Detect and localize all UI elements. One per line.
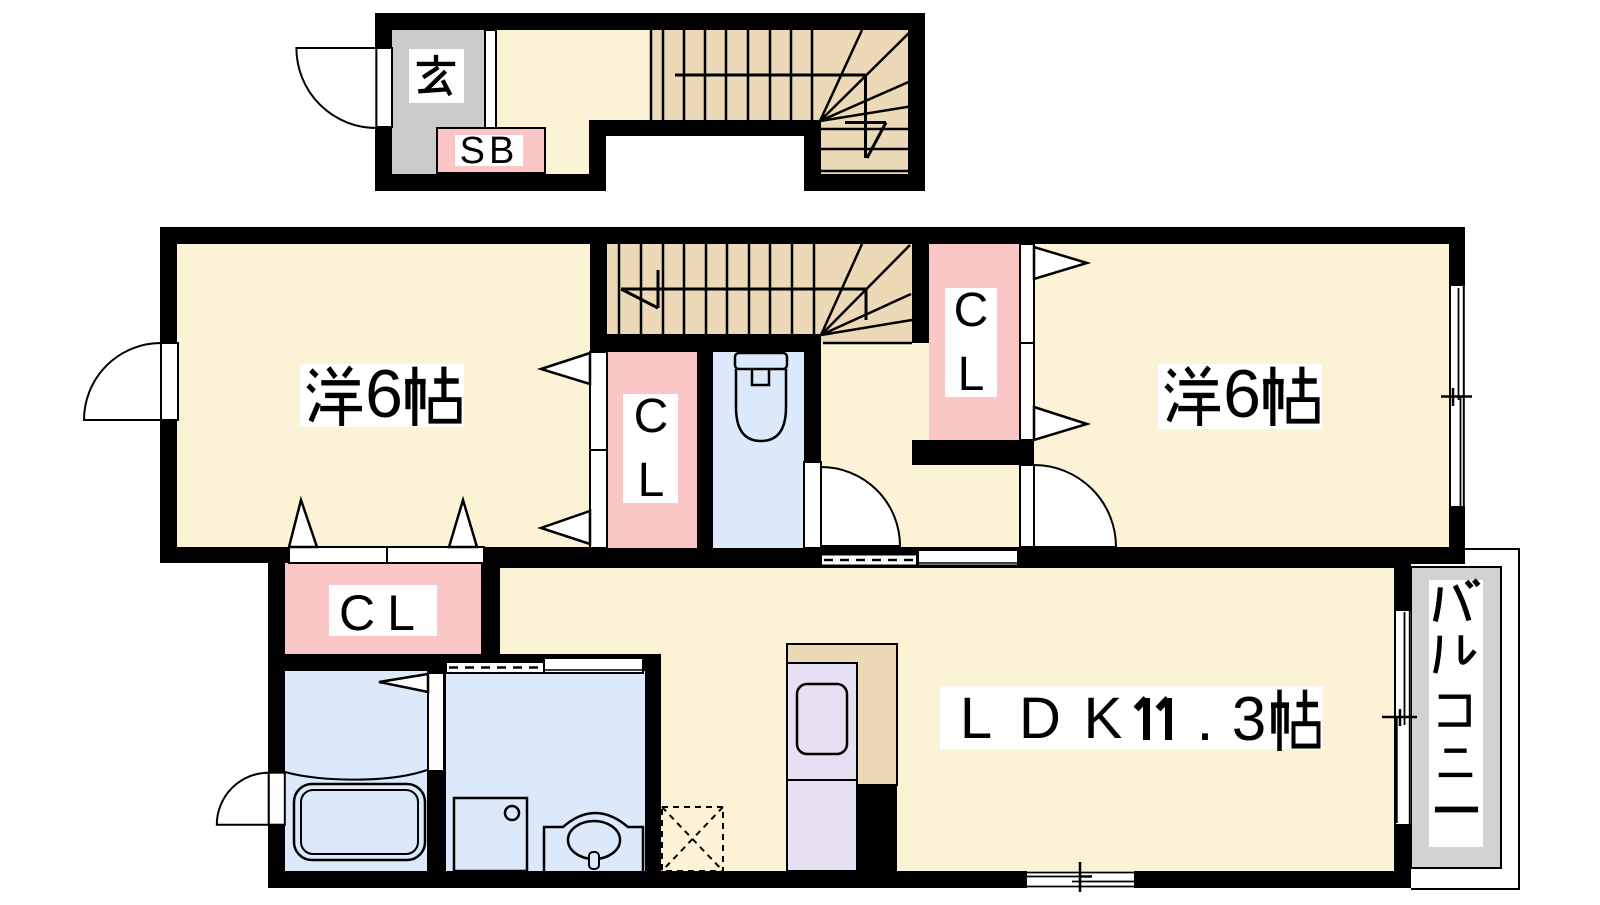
svg-text:6: 6 bbox=[365, 356, 403, 432]
svg-text:6: 6 bbox=[1223, 356, 1261, 432]
svg-text:SB: SB bbox=[460, 130, 519, 172]
svg-text:3: 3 bbox=[1232, 685, 1266, 754]
svg-text:L: L bbox=[638, 454, 665, 507]
svg-text:L: L bbox=[958, 348, 985, 401]
svg-text:K: K bbox=[1084, 686, 1123, 751]
svg-text:C: C bbox=[634, 390, 669, 443]
svg-text:.: . bbox=[1196, 685, 1213, 754]
svg-text:C: C bbox=[954, 284, 989, 337]
svg-text:D: D bbox=[1019, 686, 1061, 751]
svg-text:L: L bbox=[960, 686, 992, 751]
svg-text:CL: CL bbox=[339, 585, 427, 641]
